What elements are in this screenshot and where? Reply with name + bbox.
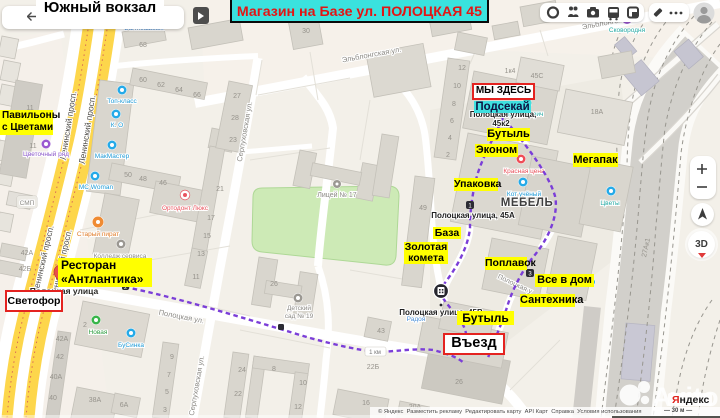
- svg-text:28: 28: [231, 115, 239, 122]
- svg-text:42А: 42А: [21, 250, 34, 257]
- svg-text:45С: 45С: [531, 73, 544, 80]
- svg-text:5: 5: [165, 389, 169, 396]
- svg-text:Радоя: Радоя: [407, 316, 426, 323]
- svg-text:13: 13: [197, 251, 205, 258]
- svg-text:2: 2: [446, 152, 450, 159]
- svg-text:66: 66: [193, 92, 201, 99]
- svg-text:Детский: Детский: [287, 304, 311, 312]
- svg-text:1к4: 1к4: [505, 68, 516, 75]
- svg-text:11: 11: [192, 274, 199, 281]
- svg-text:27: 27: [233, 93, 241, 100]
- svg-text:60: 60: [139, 77, 147, 84]
- svg-text:Лицей № 17: Лицей № 17: [317, 191, 357, 199]
- svg-text:24: 24: [238, 367, 246, 374]
- svg-text:БуСинка: БуСинка: [118, 342, 144, 349]
- svg-text:4: 4: [448, 135, 452, 142]
- svg-text:64: 64: [175, 87, 183, 94]
- svg-text:21: 21: [216, 186, 224, 193]
- svg-text:62: 62: [157, 82, 165, 89]
- svg-text:42: 42: [56, 354, 64, 361]
- svg-text:48: 48: [139, 176, 147, 183]
- svg-text:22: 22: [234, 391, 242, 398]
- svg-text:46: 46: [159, 180, 167, 187]
- svg-text:43: 43: [377, 328, 385, 335]
- svg-text:Топ-класс: Топ-класс: [107, 98, 137, 105]
- svg-text:МакМастер: МакМастер: [95, 153, 130, 160]
- svg-text:16: 16: [362, 400, 370, 407]
- svg-text:1 км: 1 км: [369, 350, 381, 356]
- svg-text:Старый пират: Старый пират: [77, 230, 119, 238]
- svg-text:26: 26: [455, 379, 463, 386]
- svg-text:10: 10: [299, 380, 307, 387]
- svg-text:2: 2: [83, 322, 87, 329]
- svg-text:12: 12: [458, 65, 466, 72]
- svg-text:38А: 38А: [89, 397, 102, 404]
- svg-text:42А: 42А: [56, 336, 69, 343]
- svg-text:40А: 40А: [50, 374, 63, 381]
- svg-text:68: 68: [139, 42, 147, 49]
- svg-text:7: 7: [167, 372, 171, 379]
- svg-text:17: 17: [207, 215, 215, 222]
- svg-text:26: 26: [270, 281, 278, 288]
- svg-text:11: 11: [29, 143, 36, 150]
- svg-text:50: 50: [124, 172, 132, 179]
- svg-text:Ортодонт Люкс: Ортодонт Люкс: [162, 205, 209, 212]
- svg-text:8: 8: [452, 101, 456, 108]
- svg-text:сад № 19: сад № 19: [285, 313, 314, 320]
- svg-text:6: 6: [450, 118, 454, 125]
- svg-text:45к2: 45к2: [492, 119, 510, 128]
- svg-text:49: 49: [419, 205, 427, 212]
- svg-text:18А: 18А: [591, 109, 604, 116]
- svg-text:3: 3: [163, 407, 167, 414]
- svg-text:42Б: 42Б: [19, 266, 32, 273]
- svg-text:Новая: Новая: [89, 329, 108, 336]
- svg-text:Цветочный ряд: Цветочный ряд: [23, 150, 69, 158]
- svg-text:9: 9: [170, 354, 174, 361]
- svg-text:12: 12: [294, 404, 302, 411]
- svg-text:22Б: 22Б: [367, 364, 380, 371]
- svg-text:К. О: К. О: [111, 122, 123, 129]
- svg-text:MC Woman: MC Woman: [79, 184, 114, 191]
- svg-text:МЕБЕЛЬ: МЕБЕЛЬ: [501, 197, 554, 209]
- svg-text:Цветы: Цветы: [600, 200, 620, 207]
- svg-text:Красная цена: Красная цена: [503, 168, 545, 175]
- svg-text:15: 15: [203, 233, 211, 240]
- svg-text:23: 23: [229, 137, 237, 144]
- svg-text:Сковородня: Сковородня: [609, 27, 646, 34]
- svg-text:40: 40: [49, 395, 57, 402]
- svg-text:30: 30: [302, 28, 310, 35]
- svg-text:СМП: СМП: [20, 200, 35, 207]
- svg-text:Полоцкая улица, 45А: Полоцкая улица, 45А: [431, 211, 515, 220]
- svg-text:8: 8: [272, 366, 276, 373]
- svg-text:10: 10: [453, 83, 461, 90]
- svg-text:6А: 6А: [120, 402, 129, 409]
